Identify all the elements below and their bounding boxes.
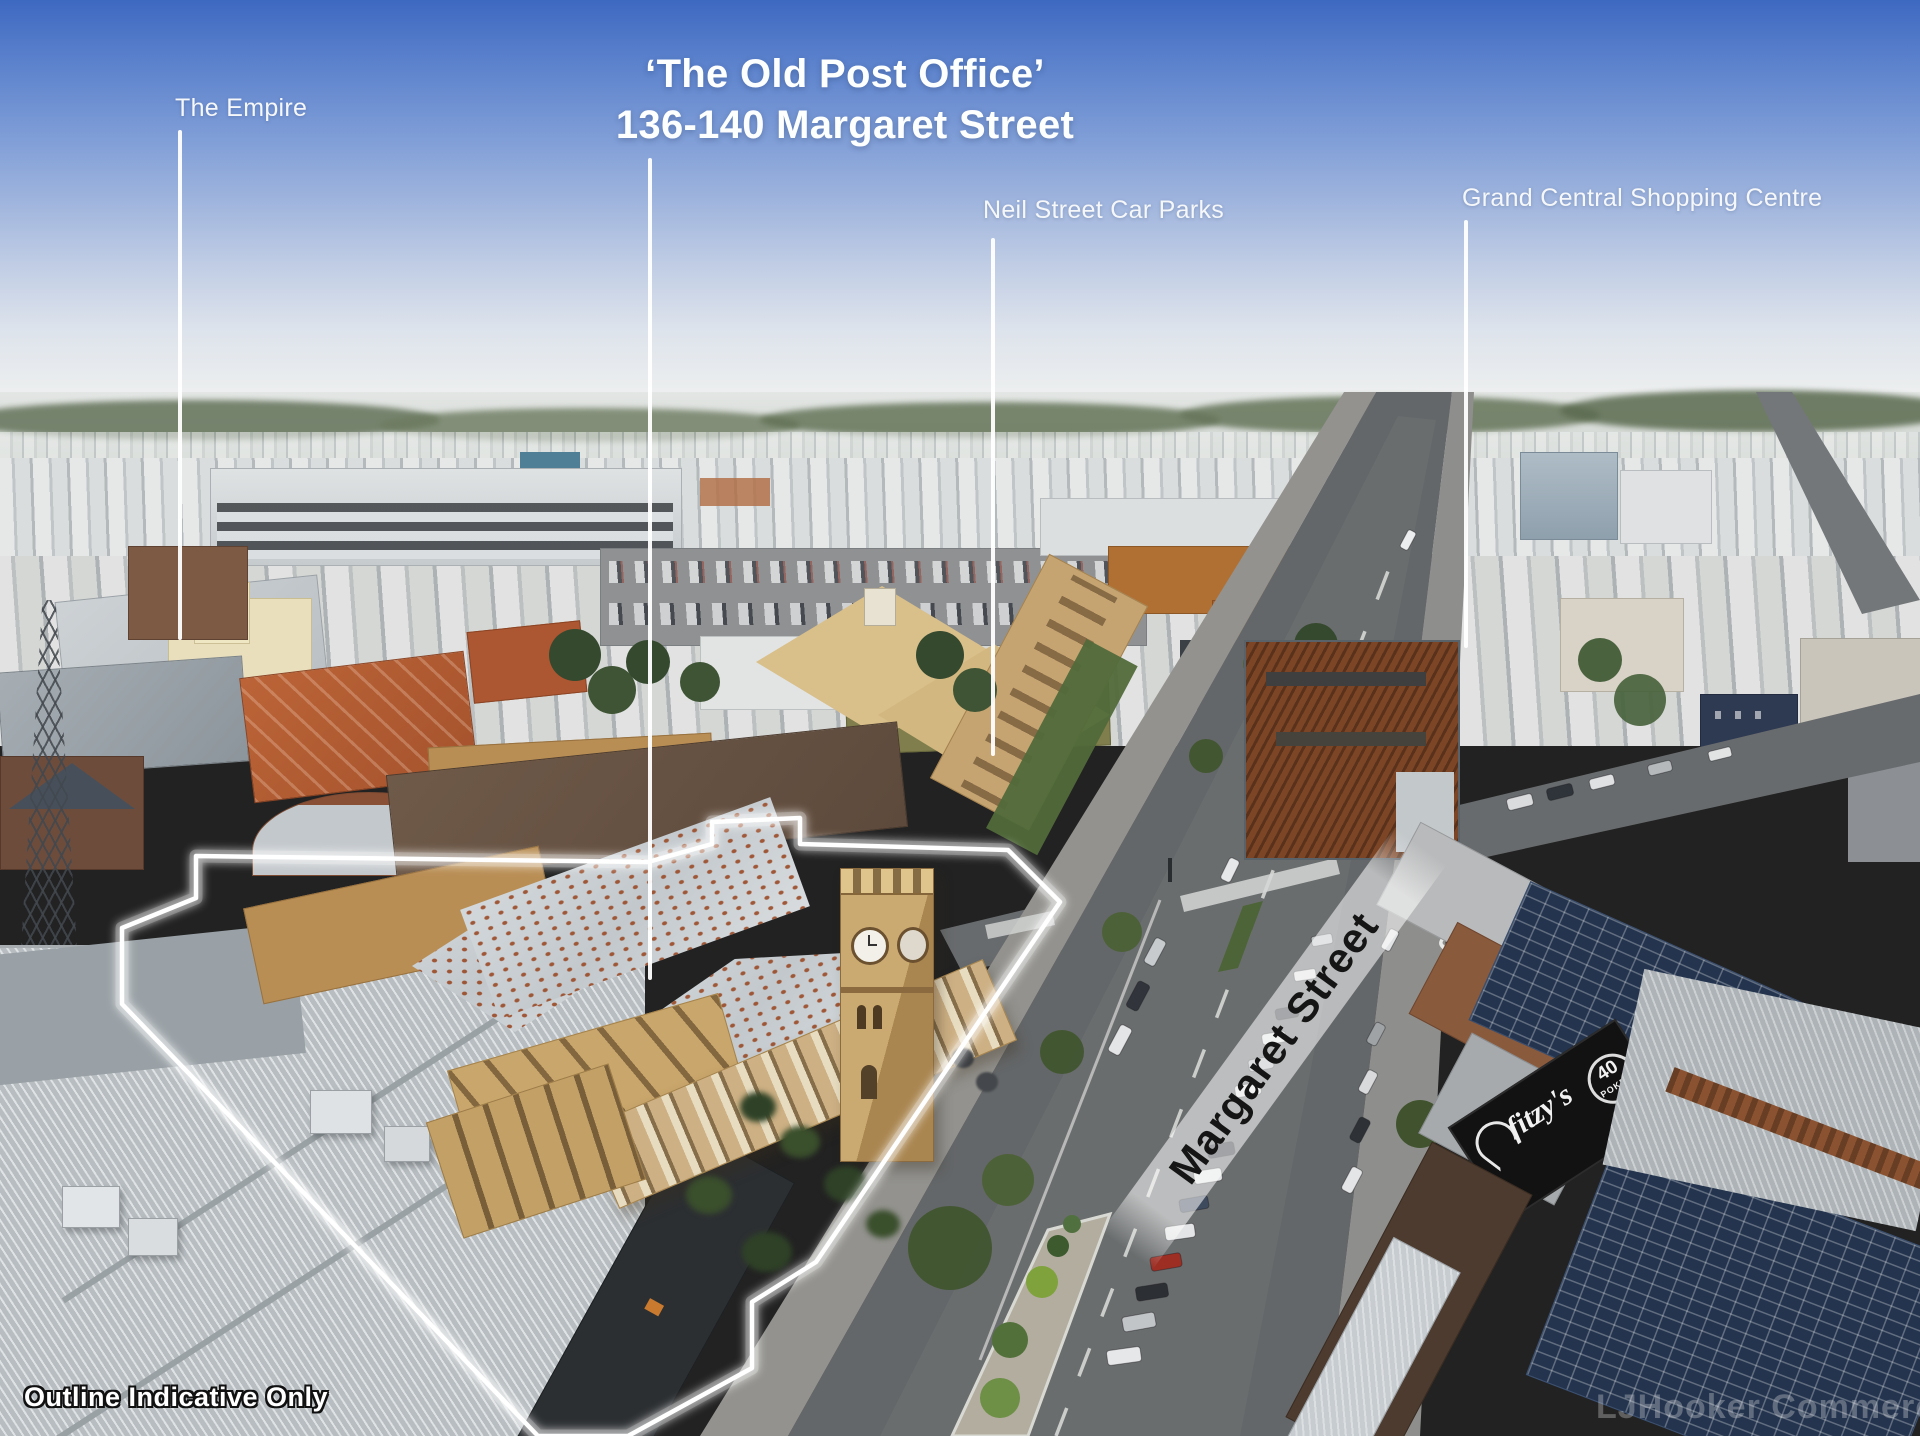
title-callout-line [648,158,652,980]
callout-label-empire: The Empire [175,94,307,123]
property-outline [122,818,1060,1436]
agency-watermark: LJHooker Commercial [1596,1388,1920,1427]
property-outline-halo [122,818,1060,1436]
neil-street-callout-line [991,238,995,756]
title-line1: ‘The Old Post Office’ [580,52,1110,97]
title-line2: 136-140 Margaret Street [580,103,1110,148]
grand-central-callout-line [1464,220,1468,648]
callout-label-neil-street: Neil Street Car Parks [983,196,1224,225]
empire-callout-line [178,130,182,640]
callout-label-grand-central: Grand Central Shopping Centre [1462,184,1822,213]
aerial-photo-scene: 40 [0,0,1920,1436]
main-title: ‘The Old Post Office’ 136-140 Margaret S… [580,52,1110,148]
outline-disclaimer: Outline Indicative Only [24,1382,328,1413]
property-outline-layer [0,0,1920,1436]
